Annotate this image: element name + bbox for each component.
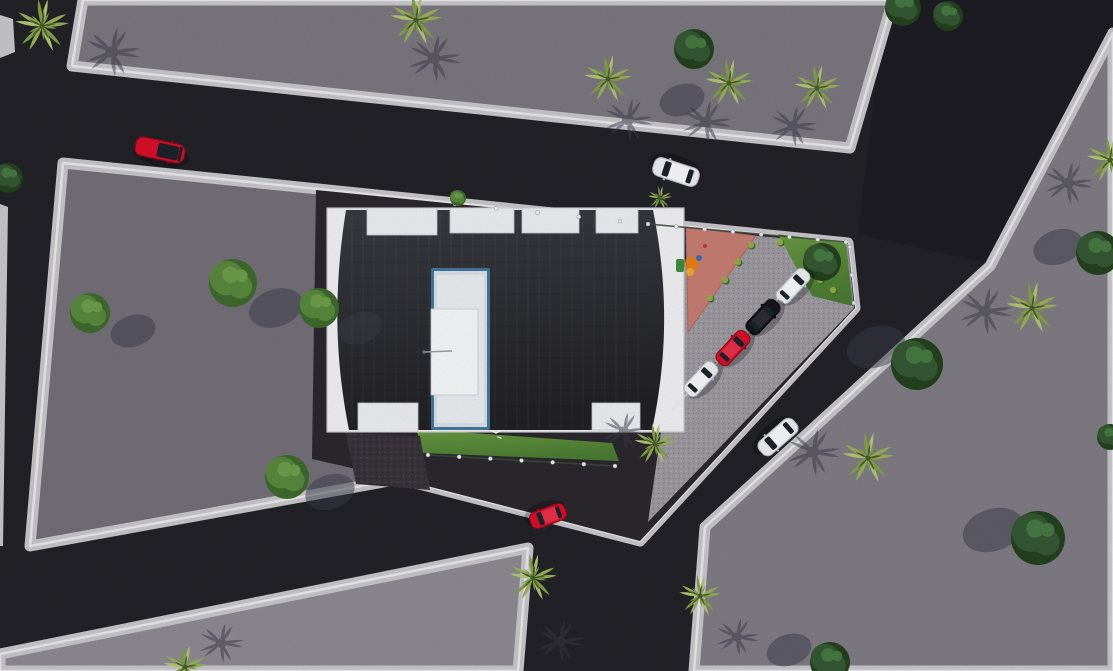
grain-overlay xyxy=(0,0,1113,671)
aerial-site-render xyxy=(0,0,1113,671)
site-plan-svg xyxy=(0,0,1113,671)
